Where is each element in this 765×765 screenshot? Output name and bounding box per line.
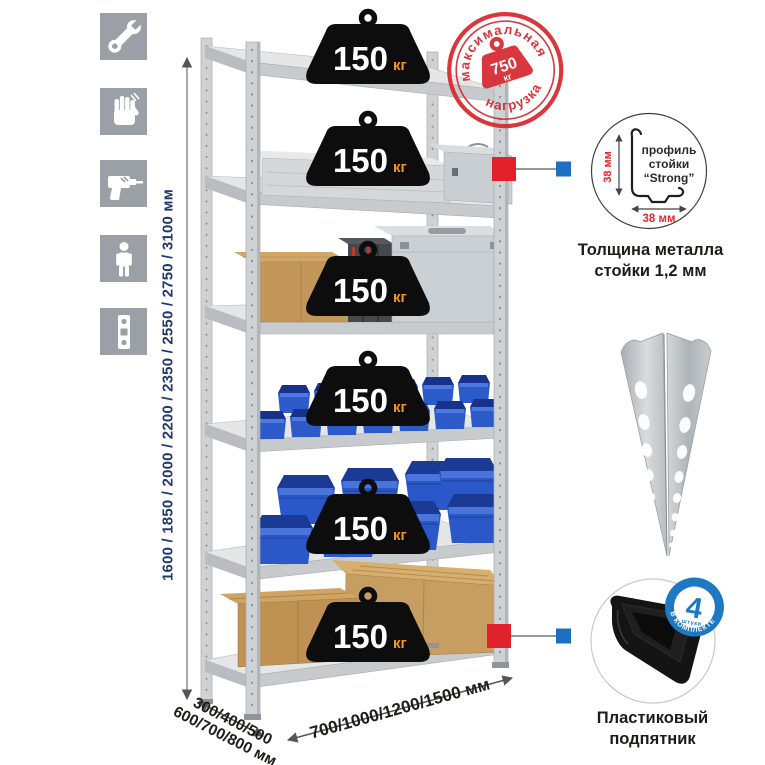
profile-title-line1: профиль	[642, 143, 697, 157]
wrench-icon	[100, 13, 147, 60]
profile-dim-vertical: 38 мм	[602, 151, 614, 183]
drill-icon	[100, 160, 147, 207]
weight-unit: кг	[393, 527, 407, 544]
weight-unit: кг	[393, 399, 407, 416]
profile-caption: Толщина металла стойки 1,2 мм	[558, 240, 743, 283]
profile-callout-circle: 38 мм 38 мм профиль стойки “Strong”	[588, 110, 710, 232]
weight-value: 150	[333, 142, 388, 179]
weight-unit: кг	[393, 159, 407, 176]
shelving-infographic: 1600 / 1850 / 2000 / 2200 / 2350 / 2550 …	[0, 0, 765, 765]
weight-value: 150	[333, 618, 388, 655]
shelf-weight-4: 150 кг	[303, 350, 433, 428]
profile-caption-line2: стойки 1,2 мм	[558, 261, 743, 282]
shelf-weight-2: 150 кг	[303, 110, 433, 188]
callout-connector-bottom	[487, 624, 571, 648]
shelf-weight-6: 150 кг	[303, 586, 433, 664]
weight-unit: кг	[393, 57, 407, 74]
foot-caption-line2: подпятник	[560, 729, 745, 750]
weight-value: 150	[333, 382, 388, 419]
weight-value: 150	[333, 510, 388, 547]
gloves-icon	[100, 88, 147, 135]
callout-connector-top	[492, 157, 571, 181]
weight-value: 150	[333, 272, 388, 309]
person-icon	[100, 235, 147, 282]
shelf-weight-3: 150 кг	[303, 240, 433, 318]
foot-caption: Пластиковый подпятник	[560, 708, 745, 751]
foot-caption-line1: Пластиковый	[560, 708, 745, 729]
post-profile-icon	[100, 308, 147, 355]
shelf-weight-1: 150 кг	[303, 8, 433, 86]
weight-unit: кг	[393, 635, 407, 652]
profile-caption-line1: Толщина металла	[558, 240, 743, 261]
weight-unit: кг	[393, 289, 407, 306]
post-profile-photo	[621, 333, 711, 556]
shelf-weight-5: 150 кг	[303, 478, 433, 556]
profile-title-line2: стойки	[649, 157, 689, 171]
height-dimension-label: 1600 / 1850 / 2000 / 2200 / 2350 / 2550 …	[160, 189, 177, 581]
profile-title-line3: “Strong”	[644, 171, 695, 185]
weight-value: 150	[333, 40, 388, 77]
quantity-badge: 4 штуки В КОМПЛЕКТЕ	[658, 571, 731, 648]
profile-dim-horizontal: 38 мм	[642, 213, 675, 225]
